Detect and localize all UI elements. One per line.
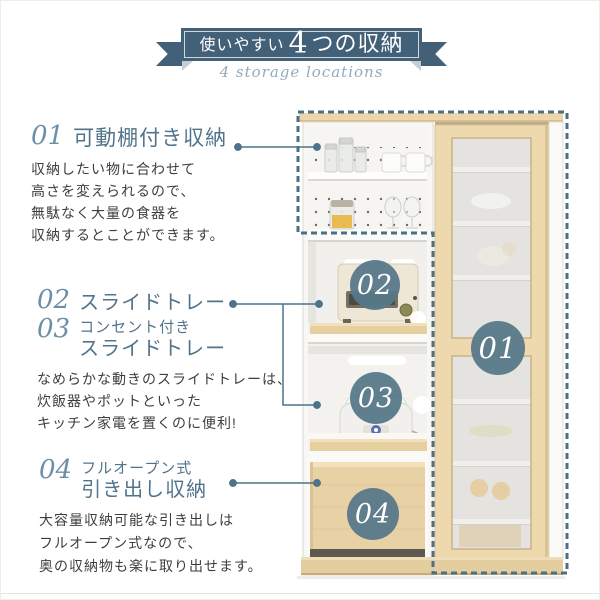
badge-01: 01 [471,321,525,375]
section-04: 04 フルオープン式 引き出し収納 大容量収納可能な引き出しは フルオープン式な… [39,457,304,578]
body-line: 大容量収納可能な引き出しは [39,509,304,532]
section-01: 01 可動棚付き収納 収納したい物に合わせて 高さを変えられるので、 無駄なく大… [31,123,296,246]
banner-title-suffix: つの収納 [312,28,404,61]
body-line: 炊飯器やポットといった [37,390,302,412]
section-04-title-line2: 引き出し収納 [81,477,207,502]
body-line: なめらかな動きのスライドトレーは、 [37,368,302,390]
cabinet-shadow [297,576,565,579]
banner-title-number: 4 [288,27,307,60]
product-feature-page: 01 02 03 04 使いやすい 4 つの収納 4 storage locat… [0,0,600,600]
badge-03: 03 [350,372,402,424]
heading-04: 04 フルオープン式 引き出し収納 [39,457,304,502]
snack-jar [330,200,354,229]
banner-subtitle: 4 storage locations [181,63,422,81]
section-02-title: スライドトレー [79,287,226,314]
open-shelf-compartment [308,127,432,242]
heading-03: 03 コンセント付き スライドトレー [37,316,302,361]
badge-01-label: 01 [479,331,518,365]
badge-02: 02 [350,260,400,310]
cabinet-top-board [299,113,563,122]
bottom-divider [1,593,600,594]
title-banner: 使いやすい 4 つの収納 [181,28,422,61]
section-02-number: 02 [37,287,70,314]
white-mugs [382,153,432,172]
banner-title-prefix: 使いやすい [199,28,284,61]
section-01-body: 収納したい物に合わせて 高さを変えられるので、 無駄なく大量の食器を 収納すると… [31,158,296,246]
badge-02-label: 02 [357,270,393,301]
section-03-title-line2: スライドトレー [79,336,226,361]
body-line: キッチン家電を置くのに便利! [37,412,302,434]
badge-04: 04 [347,488,399,540]
badge-04-label: 04 [355,499,391,530]
body-line: 収納したい物に合わせて [31,158,296,180]
section-04-number: 04 [39,457,72,484]
body-line: 収納するとことができます。 [31,224,296,246]
body-line: 奥の収納物も楽に取り出せます。 [39,555,304,578]
section-04-title-line1: フルオープン式 [81,459,207,477]
section-01-title: 可動棚付き収納 [73,123,227,151]
section-01-number: 01 [31,123,64,150]
section-02-03: 02 スライドトレー 03 コンセント付き スライドトレー なめらかな動きのスラ… [37,287,302,434]
heading-02: 02 スライドトレー [37,287,302,314]
heading-01: 01 可動棚付き収納 [31,123,296,151]
section-03-number: 03 [37,316,70,343]
body-line: 高さを変えられるので、 [31,180,296,202]
section-02-03-body: なめらかな動きのスライドトレーは、 炊飯器やポットといった キッチン家電を置くの… [37,368,302,434]
body-line: フルオープン式なので、 [39,532,304,555]
section-03-title-line1: コンセント付き [79,318,226,336]
ribbon-fold-left [182,61,193,71]
badge-03-label: 03 [358,383,394,414]
ribbon-fold-right [410,61,421,71]
body-line: 無駄なく大量の食器を [31,202,296,224]
section-04-body: 大容量収納可能な引き出しは フルオープン式なので、 奥の収納物も楽に取り出せます… [39,509,304,578]
